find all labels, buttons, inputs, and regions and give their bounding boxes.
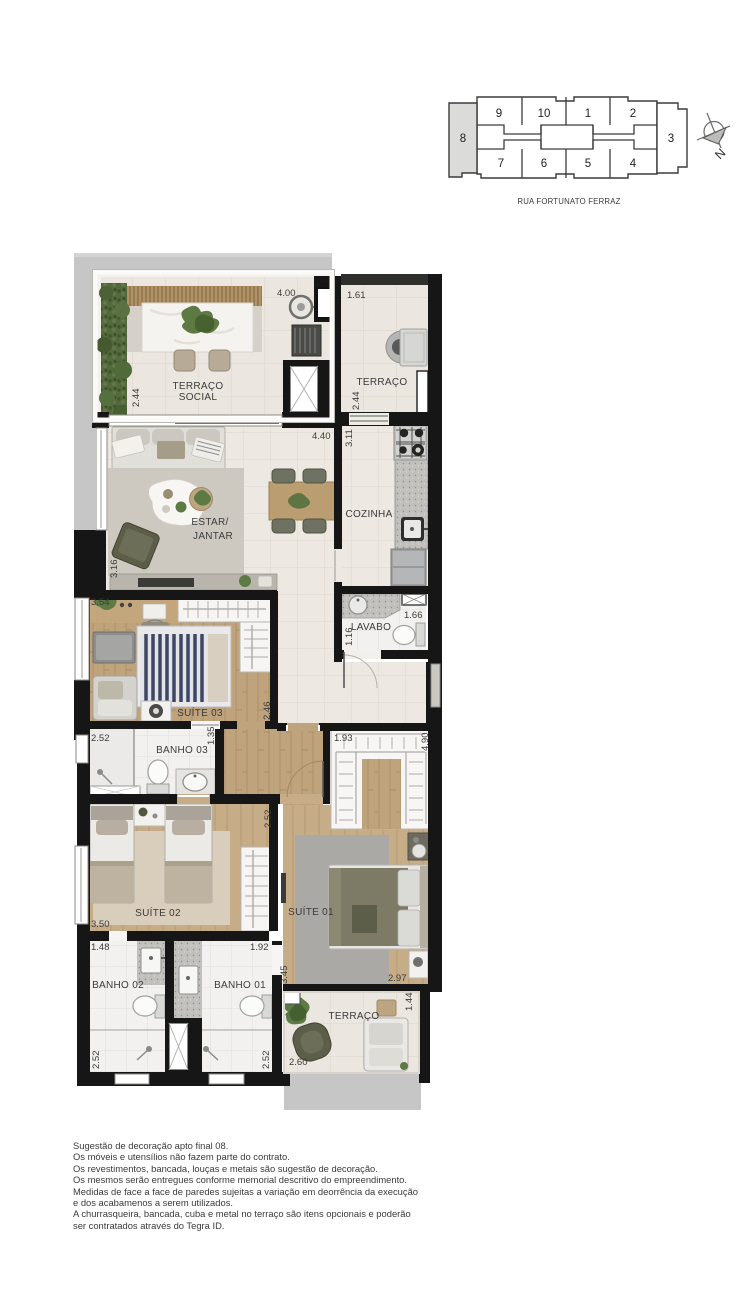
svg-text:1.66: 1.66: [404, 610, 423, 621]
svg-text:SUÍTE 01: SUÍTE 01: [288, 905, 334, 918]
svg-text:3.45: 3.45: [279, 966, 290, 985]
svg-text:SUÍTE 02: SUÍTE 02: [135, 906, 181, 919]
svg-text:2.52: 2.52: [261, 1051, 272, 1070]
svg-text:COZINHA: COZINHA: [345, 509, 392, 520]
svg-text:2.97: 2.97: [388, 973, 407, 984]
svg-text:2.44: 2.44: [351, 392, 362, 411]
svg-text:2.52: 2.52: [91, 733, 110, 744]
svg-text:RUA FORTUNATO FERRAZ: RUA FORTUNATO FERRAZ: [517, 197, 620, 206]
svg-text:BANHO 03: BANHO 03: [156, 745, 208, 756]
svg-text:1.35: 1.35: [206, 727, 217, 746]
svg-text:9: 9: [496, 108, 502, 120]
svg-text:3: 3: [668, 133, 674, 145]
svg-text:LAVABO: LAVABO: [351, 622, 391, 633]
svg-text:1.44: 1.44: [404, 993, 415, 1012]
svg-text:SOCIAL: SOCIAL: [179, 392, 218, 403]
svg-text:3.16: 3.16: [109, 560, 120, 579]
svg-text:SUÍTE 03: SUÍTE 03: [177, 706, 223, 719]
svg-text:1: 1: [585, 108, 591, 120]
svg-text:2.52: 2.52: [91, 1051, 102, 1070]
svg-text:4.40: 4.40: [312, 431, 331, 442]
svg-text:JANTAR: JANTAR: [193, 531, 233, 542]
svg-text:2.46: 2.46: [262, 702, 273, 721]
svg-text:1.61: 1.61: [347, 290, 366, 301]
svg-text:BANHO 01: BANHO 01: [214, 980, 266, 991]
svg-text:4.00: 4.00: [277, 288, 296, 299]
svg-text:8: 8: [460, 133, 466, 145]
svg-text:6: 6: [541, 158, 547, 170]
svg-text:TERRAÇO: TERRAÇO: [357, 377, 408, 388]
svg-text:ESTAR/: ESTAR/: [191, 517, 228, 528]
svg-text:TERRAÇO: TERRAÇO: [173, 381, 224, 392]
svg-text:5: 5: [585, 158, 591, 170]
svg-text:1.92: 1.92: [250, 942, 269, 953]
svg-text:10: 10: [538, 108, 551, 120]
svg-text:3.50: 3.50: [91, 919, 110, 930]
svg-text:3.11: 3.11: [344, 429, 355, 447]
svg-text:3.54: 3.54: [91, 597, 110, 608]
svg-text:2.44: 2.44: [131, 389, 142, 408]
svg-text:2.52: 2.52: [263, 810, 274, 829]
svg-text:1.16: 1.16: [344, 628, 355, 647]
svg-text:4: 4: [630, 158, 637, 170]
svg-text:7: 7: [498, 158, 504, 170]
svg-text:1.93: 1.93: [334, 733, 353, 744]
svg-text:2.60: 2.60: [289, 1057, 308, 1068]
svg-text:1.48: 1.48: [91, 942, 110, 953]
svg-text:4.90: 4.90: [420, 733, 431, 752]
svg-text:2: 2: [630, 108, 636, 120]
svg-text:BANHO 02: BANHO 02: [92, 980, 144, 991]
svg-text:TERRAÇO: TERRAÇO: [329, 1011, 380, 1022]
